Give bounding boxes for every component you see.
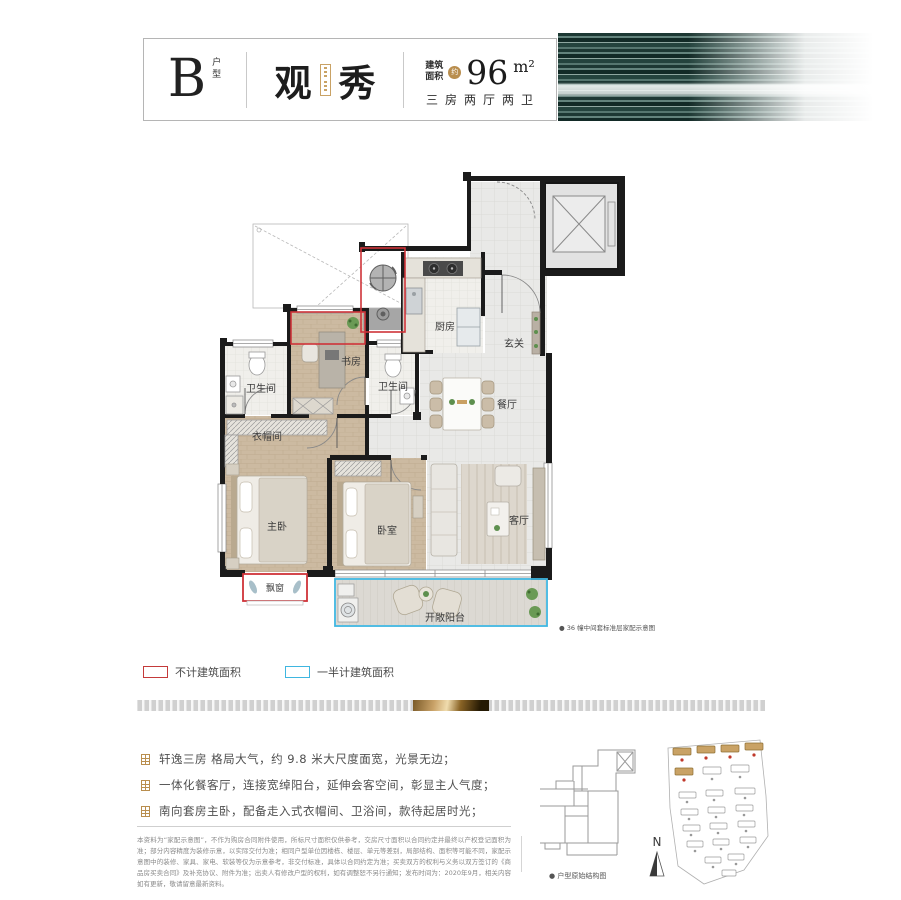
vertical-separator xyxy=(521,836,522,872)
legend-half-counted: 一半计建筑面积 xyxy=(285,664,394,680)
feature-text: 南向套房主卧，配备走入式衣帽间、卫浴间，款待起居时光； xyxy=(159,803,483,819)
label-study: 书房 xyxy=(341,355,361,368)
label-balcony: 开敞阳台 xyxy=(425,611,465,624)
label-bedroom: 卧室 xyxy=(377,524,397,537)
floorplan-note: ● 36 幢中间套标准层家配示意图 xyxy=(559,623,655,632)
unit-type-label: 户型 xyxy=(209,57,222,81)
bedroom-bed xyxy=(337,482,423,566)
legend-not-counted: 不计建筑面积 xyxy=(143,664,241,680)
feature-text: 一体化餐客厅，连接宽绰阳台，延伸会客空间，彰显主人气度； xyxy=(159,777,495,793)
unit-name-block: 观 秀 xyxy=(247,53,403,107)
feature-item: 南向套房主卧，配备走入式衣帽间、卫浴间，款待起居时光； xyxy=(141,798,495,824)
area-block: 建筑 面积 约 96 m² 三房两厅两卫 xyxy=(404,52,556,108)
structure-plan-label: ● 户型原始结构图 xyxy=(549,871,606,881)
label-foyer: 玄关 xyxy=(504,337,524,350)
unit-name-char2: 秀 xyxy=(339,53,376,107)
shoe-cabinet xyxy=(532,312,540,354)
unit-header: B 户型 观 秀 建筑 面积 约 96 m² 三房两厅两卫 xyxy=(143,38,557,121)
legend-not-counted-label: 不计建筑面积 xyxy=(175,664,241,680)
label-bath-left: 卫生间 xyxy=(246,382,276,395)
unit-letter: B xyxy=(168,52,206,107)
elevator-shaft xyxy=(540,178,623,274)
decorative-green-stripe xyxy=(558,33,901,121)
disclaimer-block: 本资料为“家配示意图”，不作为购房合同附件使用，所标尺寸面积仅供参考，交房尺寸面… xyxy=(137,826,511,890)
layout-description: 三房两厅两卫 xyxy=(426,91,540,108)
label-master: 主卧 xyxy=(267,520,287,533)
feature-text: 轩逸三房 格局大气，约 9.8 米大尺度面宽，光景无边； xyxy=(159,751,455,767)
feature-list: 轩逸三房 格局大气，约 9.8 米大尺度面宽，光景无边； 一体化餐客厅，连接宽绰… xyxy=(141,746,495,824)
feature-item: 轩逸三房 格局大气，约 9.8 米大尺度面宽，光景无边； xyxy=(141,746,495,772)
gold-seal-icon xyxy=(320,64,331,96)
approx-badge: 约 xyxy=(448,66,461,79)
legend-half-counted-label: 一半计建筑面积 xyxy=(317,664,394,680)
legend: 不计建筑面积 一半计建筑面积 xyxy=(143,664,394,680)
area-unit: m² xyxy=(513,57,535,76)
gold-accent xyxy=(413,700,489,711)
feature-item: 一体化餐客厅，连接宽绰阳台，延伸会客空间，彰显主人气度； xyxy=(141,772,495,798)
area-label: 建筑 面积 xyxy=(425,61,443,84)
red-swatch-icon xyxy=(143,666,168,678)
area-value: 96 xyxy=(466,56,508,89)
corridor-floor xyxy=(367,416,427,458)
disclaimer-text: 本资料为“家配示意图”，不作为购房合同附件使用，所标尺寸面积仅供参考，交房尺寸面… xyxy=(137,835,511,890)
label-baywindow: 飘窗 xyxy=(266,582,284,594)
lattice-bullet-icon xyxy=(141,806,150,817)
unit-name-char1: 观 xyxy=(275,53,312,107)
label-living: 客厅 xyxy=(509,514,529,527)
master-bed xyxy=(226,464,307,569)
floorplan-brochure-page: B 户型 观 秀 建筑 面积 约 96 m² 三房两厅两卫 xyxy=(0,0,901,900)
label-dining: 餐厅 xyxy=(497,398,517,411)
site-plan-svg xyxy=(660,736,782,892)
blue-swatch-icon xyxy=(285,666,310,678)
label-bath-center: 卫生间 xyxy=(378,380,408,393)
dining-set xyxy=(430,378,494,430)
unit-letter-block: B 户型 xyxy=(144,52,246,107)
label-closet: 衣帽间 xyxy=(252,430,282,443)
floorplan-svg: 厨房 玄关 书房 卫生间 卫生间 餐厅 衣帽间 主卧 卧室 客厅 飘窗 开敞阳台… xyxy=(195,162,665,667)
label-kitchen: 厨房 xyxy=(435,320,455,333)
structure-plan-svg xyxy=(536,742,642,868)
lattice-bullet-icon xyxy=(141,780,150,791)
lattice-bullet-icon xyxy=(141,754,150,765)
decorative-tick-stripe xyxy=(137,700,765,711)
